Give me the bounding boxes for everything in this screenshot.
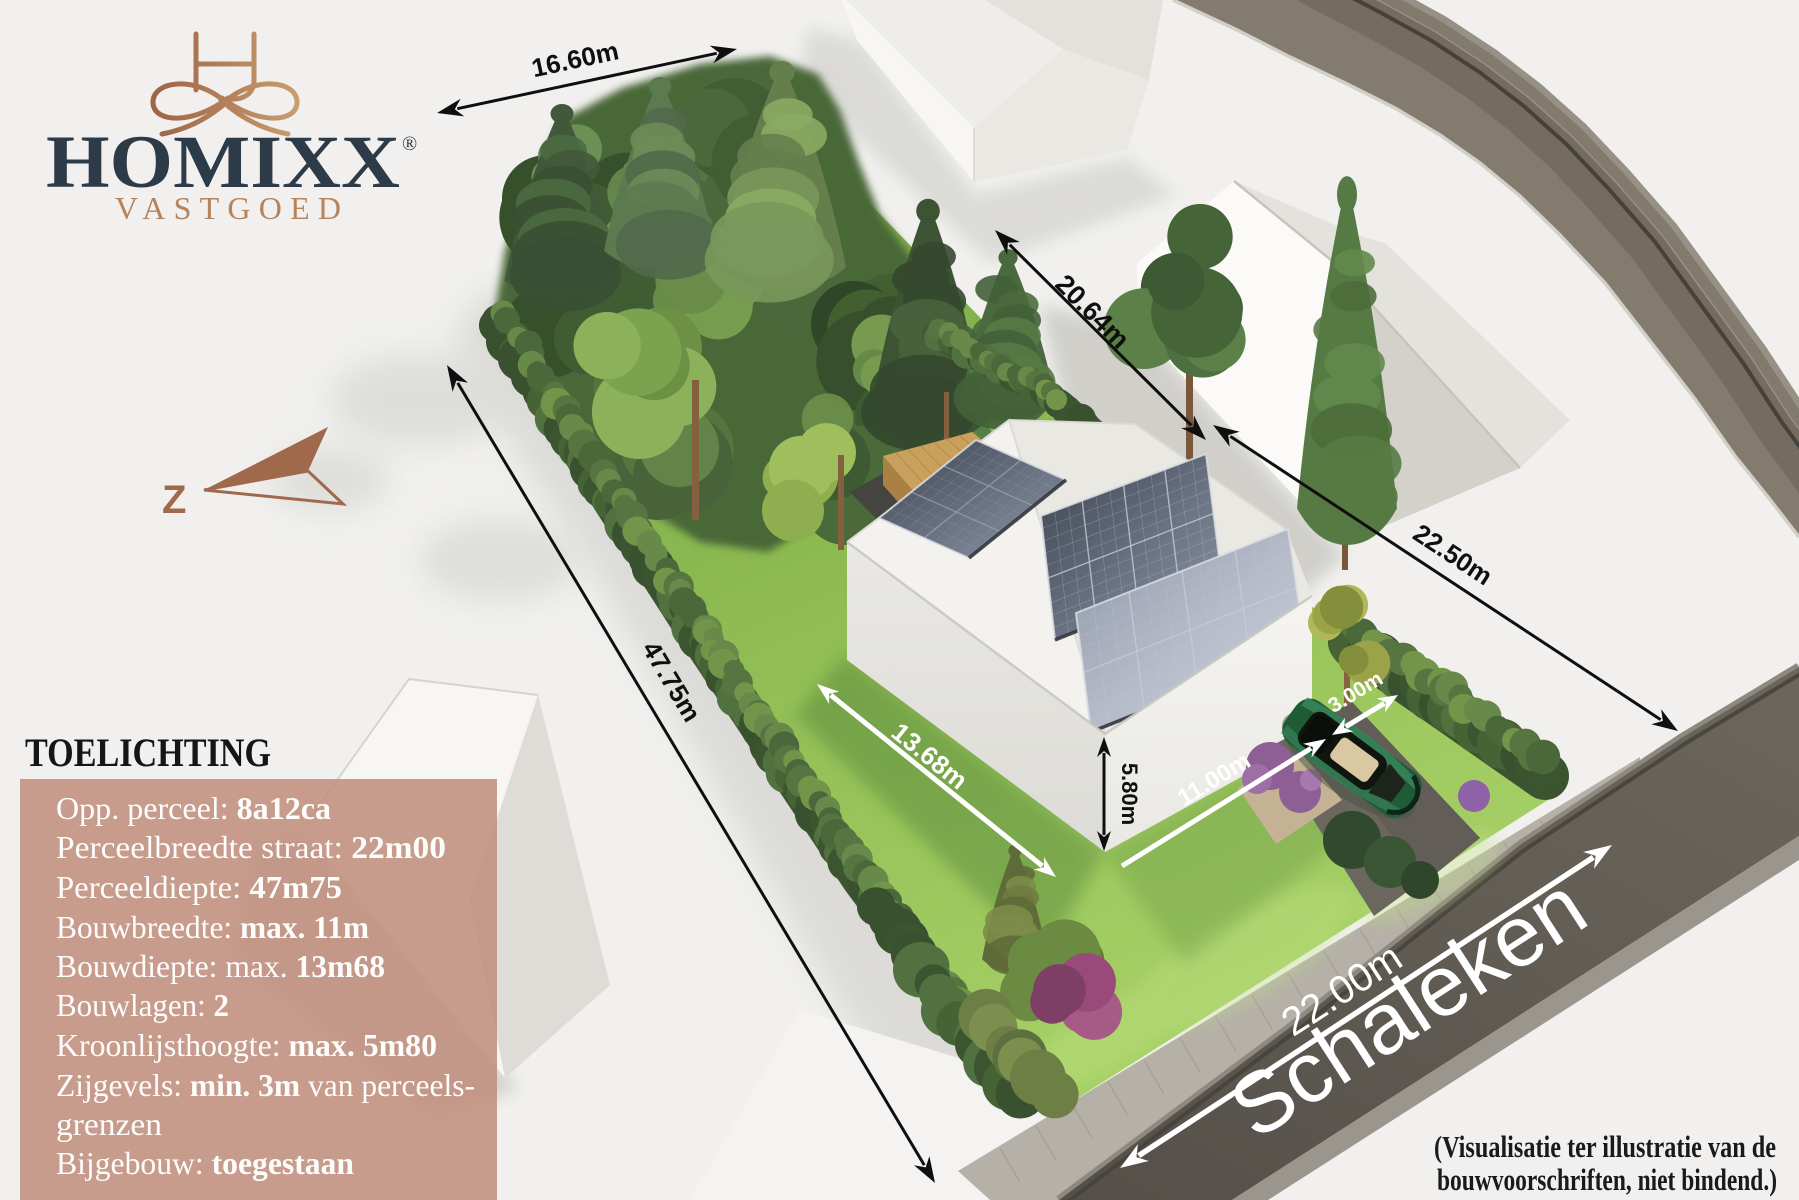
svg-text:Bouwbreedte: max. 11m: Bouwbreedte: max. 11m — [56, 909, 369, 945]
svg-text:VASTGOED: VASTGOED — [115, 190, 341, 226]
svg-text:®: ® — [402, 133, 417, 155]
svg-text:Bijgebouw: toegestaan: Bijgebouw: toegestaan — [56, 1145, 354, 1181]
svg-text:HOMIXX: HOMIXX — [46, 121, 400, 204]
svg-text:Bouwlagen: 2: Bouwlagen: 2 — [56, 987, 229, 1023]
svg-text:5.80m: 5.80m — [1117, 763, 1142, 825]
svg-text:TOELICHTING: TOELICHTING — [25, 730, 271, 775]
svg-text:Zijgevels: min. 3m van perceel: Zijgevels: min. 3m van perceels- — [56, 1067, 475, 1103]
svg-text:Kroonlijsthoogte: max. 5m80: Kroonlijsthoogte: max. 5m80 — [56, 1027, 437, 1063]
svg-text:Perceeldiepte: 47m75: Perceeldiepte: 47m75 — [56, 869, 342, 905]
svg-text:grenzen: grenzen — [56, 1106, 162, 1142]
svg-text:Z: Z — [162, 478, 186, 522]
svg-text:bouwvoorschriften, niet binden: bouwvoorschriften, niet bindend.) — [1437, 1162, 1777, 1197]
svg-text:Bouwdiepte: max. 13m68: Bouwdiepte: max. 13m68 — [56, 948, 385, 984]
svg-text:Perceelbreedte straat: 22m00: Perceelbreedte straat: 22m00 — [56, 829, 446, 865]
svg-text:(Visualisatie ter illustratie: (Visualisatie ter illustratie van de — [1434, 1129, 1776, 1164]
svg-text:Opp. perceel: 8a12ca: Opp. perceel: 8a12ca — [56, 790, 331, 826]
